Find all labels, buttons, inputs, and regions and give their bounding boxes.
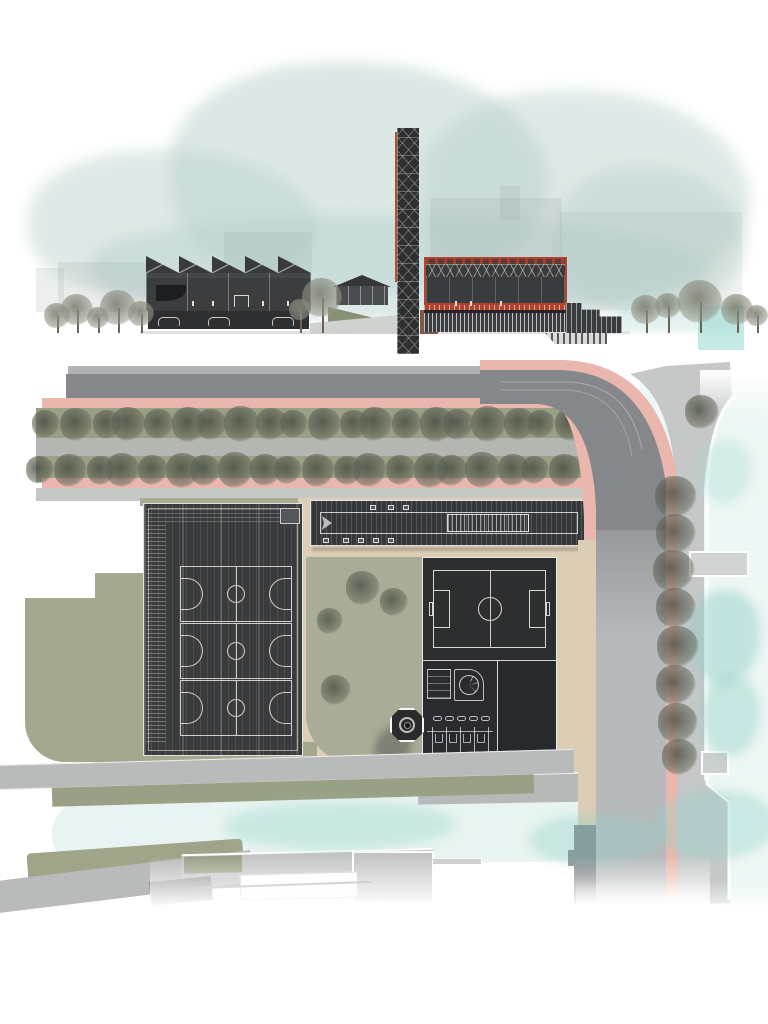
- avenue-tree: [308, 408, 341, 441]
- spiral-stair-icon: [459, 675, 479, 695]
- three-point-arc: [181, 692, 203, 724]
- avenue-tree: [353, 453, 387, 487]
- promenade-tree: [662, 739, 698, 775]
- basketball-court: [180, 566, 292, 622]
- bench: [445, 716, 454, 721]
- grass-field: [25, 598, 147, 762]
- rooflight: [373, 538, 379, 543]
- rooflight: [388, 505, 394, 510]
- centre-circle: [227, 699, 245, 717]
- avenue-tree: [26, 456, 54, 484]
- promenade-tree: [653, 550, 695, 592]
- avenue-tree: [106, 453, 140, 487]
- roof-plant-box: [280, 508, 300, 524]
- rooflight: [370, 505, 376, 510]
- rooflight: [388, 538, 394, 543]
- promenade-tree: [685, 395, 719, 429]
- sand-strip-west: [578, 540, 596, 825]
- courtyard-tree: [321, 675, 351, 705]
- architectural-drawing-sheet: [0, 0, 768, 1024]
- avenue-tree: [32, 410, 60, 438]
- promenade-tree: [656, 665, 696, 705]
- bench: [433, 716, 442, 721]
- rooflight: [323, 538, 329, 543]
- bleacher-strip: [146, 522, 166, 742]
- avenue-tree: [218, 452, 254, 488]
- avenue-tree: [190, 455, 221, 486]
- avenue-tree: [280, 410, 308, 438]
- avenue-tree: [144, 409, 174, 439]
- avenue-tree: [138, 455, 168, 485]
- rooflight: [403, 505, 409, 510]
- promenade-tree: [657, 626, 699, 668]
- water-dock: [690, 552, 748, 576]
- courtyard-tree: [380, 588, 408, 616]
- stall-door: [449, 734, 457, 743]
- three-point-arc: [181, 635, 203, 667]
- promenade-tree: [655, 476, 697, 518]
- bench: [457, 716, 466, 721]
- avenue-tree: [274, 456, 302, 484]
- centre-circle: [227, 642, 245, 660]
- rooflight: [343, 538, 349, 543]
- avenue-tree: [196, 409, 227, 440]
- road-fade: [576, 880, 768, 920]
- courtyard-tree: [346, 571, 380, 605]
- rooflight: [358, 538, 364, 543]
- penalty-box-left: [434, 590, 450, 628]
- room-cluster: [427, 669, 451, 699]
- avenue-tree: [54, 454, 87, 487]
- centre-circle: [227, 585, 245, 603]
- goal-left: [429, 602, 433, 616]
- avenue-tree: [392, 409, 422, 439]
- three-point-arc: [269, 635, 291, 667]
- tower-core: [405, 723, 410, 728]
- three-point-arc: [269, 692, 291, 724]
- avenue-tree: [443, 409, 474, 440]
- promenade-tree: [656, 514, 696, 554]
- avenue-tree: [224, 406, 260, 442]
- water-texture: [655, 790, 768, 860]
- courtyard-tree: [317, 608, 343, 634]
- avenue-tree: [302, 454, 335, 487]
- roof-top-strip: [146, 506, 300, 522]
- bench: [469, 716, 478, 721]
- three-point-arc: [181, 578, 203, 610]
- avenue-tree: [386, 455, 416, 485]
- site-plan: [0, 0, 768, 1024]
- basketball-court: [180, 623, 292, 679]
- promenade-tree: [656, 588, 696, 628]
- avenue-tree: [112, 407, 146, 441]
- avenue-tree: [60, 408, 93, 441]
- basketball-court: [180, 680, 292, 736]
- three-point-arc: [269, 578, 291, 610]
- stall-door: [463, 734, 471, 743]
- avenue-tree: [437, 455, 468, 486]
- promenade-tree: [658, 703, 698, 743]
- stall-door: [435, 734, 443, 743]
- avenue-tree: [359, 407, 393, 441]
